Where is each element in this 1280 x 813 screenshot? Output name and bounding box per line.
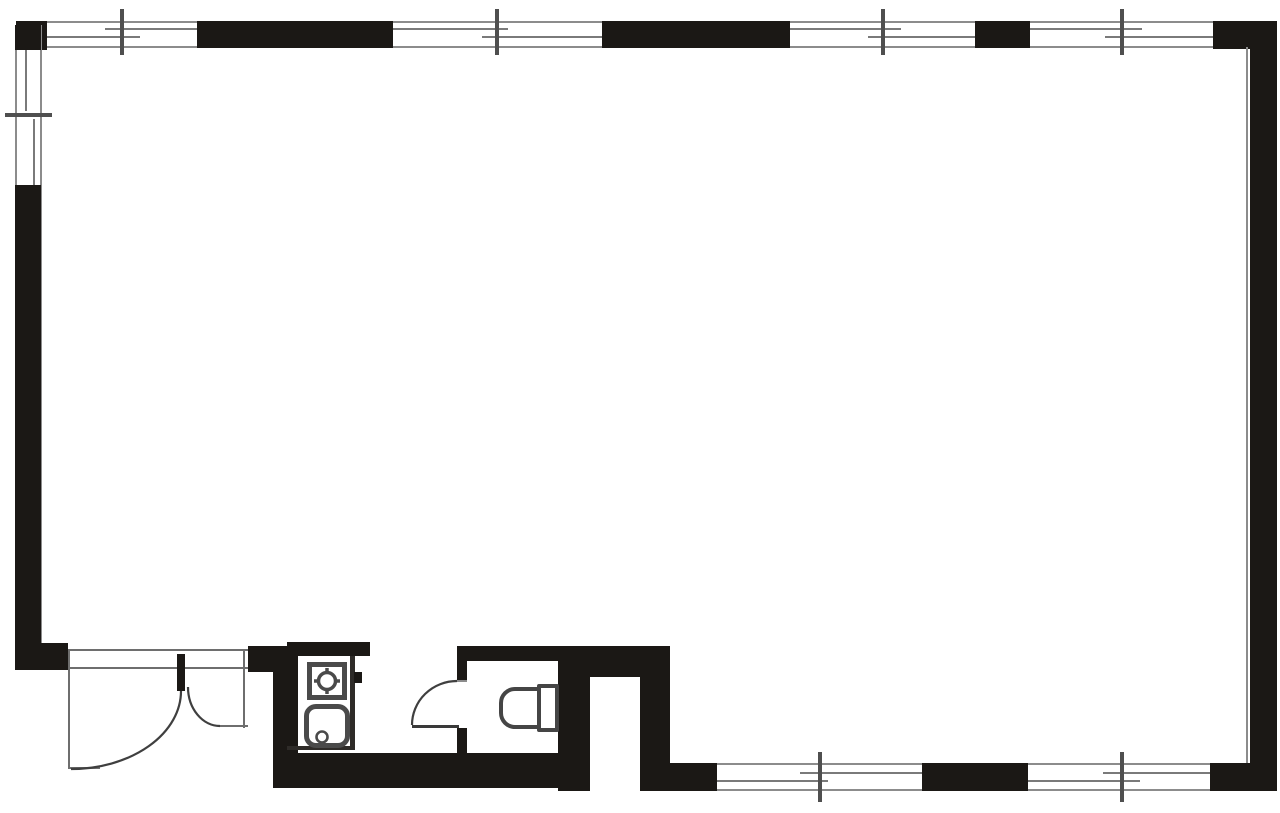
entrance-door-small-swing-arc xyxy=(188,687,220,726)
burner-circle-icon xyxy=(314,668,340,694)
sink-drain-icon xyxy=(317,732,328,747)
toilet-door-swing-arc xyxy=(412,681,457,725)
door-swing-overlay xyxy=(0,0,1280,813)
floor-plan-canvas xyxy=(0,0,1280,813)
entrance-door-large-swing-arc xyxy=(71,691,181,769)
